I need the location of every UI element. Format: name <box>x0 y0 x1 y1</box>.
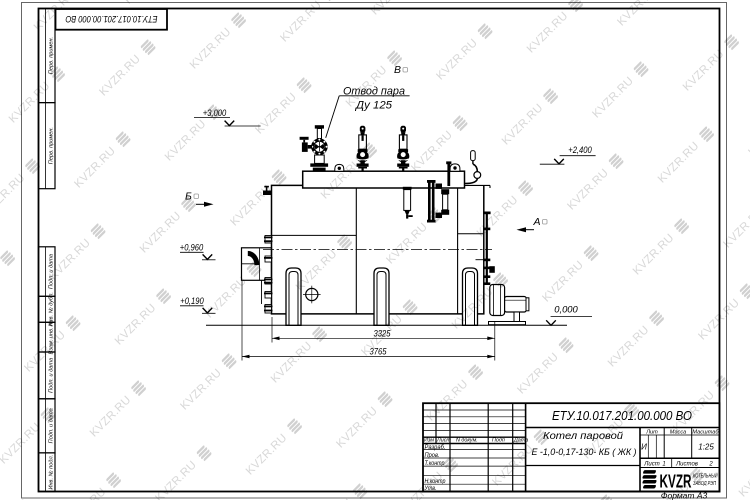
svg-text:Подп. и дата: Подп. и дата <box>49 358 55 393</box>
svg-text:Масштаб: Масштаб <box>692 429 719 435</box>
svg-text:Пров.: Пров. <box>425 452 440 459</box>
svg-text:0,000: 0,000 <box>554 305 578 315</box>
svg-text:ЗАВОД РЭП: ЗАВОД РЭП <box>693 481 716 487</box>
svg-text:+0,960: +0,960 <box>180 243 204 253</box>
svg-text:Лист: Лист <box>436 438 451 444</box>
svg-text:2: 2 <box>708 461 713 467</box>
svg-text:Подп: Подп <box>492 438 505 444</box>
svg-text:Перв. примен.: Перв. примен. <box>49 127 55 164</box>
svg-text:Инв. № подл.: Инв. № подл. <box>49 455 55 490</box>
svg-text:Т.контр: Т.контр <box>425 460 445 467</box>
svg-text:Перв. примен.: Перв. примен. <box>49 37 55 74</box>
svg-text:ЕТУ.10.017.201.00.000 ВО: ЕТУ.10.017.201.00.000 ВО <box>65 13 157 24</box>
svg-text:Изм: Изм <box>424 438 434 444</box>
svg-text:Лист: Лист <box>643 461 659 467</box>
svg-text:+0,190: +0,190 <box>180 296 204 306</box>
svg-text:И: И <box>641 443 647 452</box>
svg-text:1: 1 <box>662 461 665 467</box>
svg-text:+2,400: +2,400 <box>568 145 592 155</box>
svg-text:N докум.: N докум. <box>456 438 478 444</box>
svg-text:Дата: Дата <box>513 438 528 444</box>
svg-text:Листов: Листов <box>675 461 698 467</box>
svg-text:Разраб.: Разраб. <box>425 443 446 451</box>
svg-text:Лит: Лит <box>645 429 658 435</box>
svg-text:1:25: 1:25 <box>698 443 714 452</box>
svg-text:А: А <box>533 216 541 228</box>
